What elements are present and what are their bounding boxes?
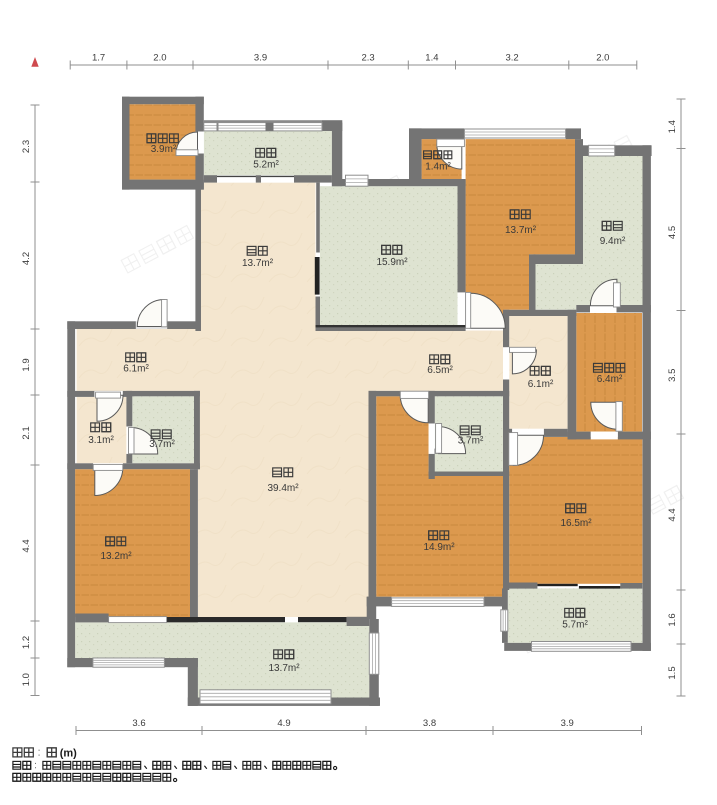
svg-text:2.3: 2.3 (21, 140, 32, 153)
svg-text:2.1: 2.1 (21, 426, 32, 439)
svg-text:13.7m²: 13.7m² (505, 225, 537, 236)
svg-text:5.7m²: 5.7m² (562, 620, 588, 631)
svg-text:3.7m²: 3.7m² (458, 436, 484, 447)
svg-text:1.7: 1.7 (92, 53, 105, 64)
svg-text:1.4: 1.4 (667, 120, 678, 133)
svg-text:4.9: 4.9 (277, 718, 290, 729)
svg-text:4.2: 4.2 (21, 252, 32, 265)
svg-text:1.2: 1.2 (21, 636, 32, 649)
svg-text:4.4: 4.4 (667, 508, 678, 521)
svg-text:3.7m²: 3.7m² (149, 439, 175, 450)
svg-text:6.5m²: 6.5m² (427, 365, 453, 376)
svg-text:3.9: 3.9 (561, 718, 574, 729)
svg-text:6.1m²: 6.1m² (123, 364, 149, 375)
svg-text:3.1m²: 3.1m² (88, 435, 114, 446)
svg-text:13.2m²: 13.2m² (100, 551, 132, 562)
svg-text:39.4m²: 39.4m² (267, 483, 299, 494)
svg-text:6.4m²: 6.4m² (597, 374, 623, 385)
svg-text:13.7m²: 13.7m² (242, 258, 274, 269)
svg-text:1.4m²: 1.4m² (425, 162, 451, 173)
svg-text:4.4: 4.4 (21, 539, 32, 552)
svg-text:(m): (m) (60, 748, 77, 760)
svg-text:14.9m²: 14.9m² (423, 542, 455, 553)
svg-text:13.7m²: 13.7m² (268, 663, 300, 674)
svg-text:2.0: 2.0 (596, 53, 609, 64)
svg-text:6.1m²: 6.1m² (528, 379, 554, 390)
svg-text:3.6: 3.6 (132, 718, 145, 729)
svg-text:1.4: 1.4 (425, 53, 438, 64)
svg-text:1.5: 1.5 (667, 666, 678, 679)
svg-text:3.2: 3.2 (505, 53, 518, 64)
svg-text:1.0: 1.0 (21, 673, 32, 686)
svg-text:2.3: 2.3 (361, 53, 374, 64)
svg-text:9.4m²: 9.4m² (600, 236, 626, 247)
svg-text:16.5m²: 16.5m² (560, 518, 592, 529)
svg-text:15.9m²: 15.9m² (376, 257, 408, 268)
svg-text:4.5: 4.5 (667, 226, 678, 239)
svg-text:3.9m²: 3.9m² (151, 144, 177, 155)
svg-text:1.9: 1.9 (21, 358, 32, 371)
svg-text:3.8: 3.8 (423, 718, 436, 729)
svg-text:1.6: 1.6 (667, 613, 678, 626)
svg-text:3.9: 3.9 (254, 53, 267, 64)
svg-text:3.5: 3.5 (667, 369, 678, 382)
svg-text:5.2m²: 5.2m² (253, 160, 279, 171)
svg-text:2.0: 2.0 (153, 53, 166, 64)
